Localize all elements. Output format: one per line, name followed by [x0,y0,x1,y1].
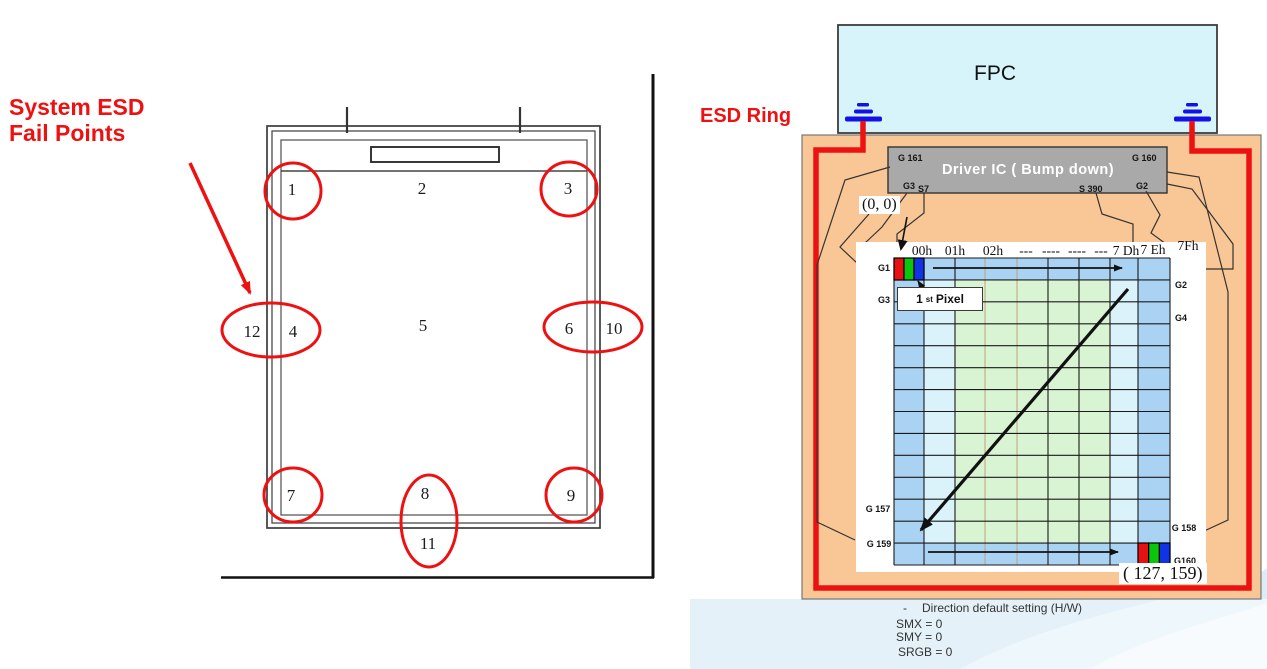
grid-cell [1017,258,1048,280]
grid-cell [1110,324,1138,346]
col-header-7eh: 7 Eh [1140,242,1165,258]
grid-cell [894,368,924,390]
fail-point-5: 5 [419,316,428,336]
grid-cell [985,543,1017,565]
grid-cell [894,543,924,565]
grid-cell [985,499,1017,521]
grid-cell [1048,390,1079,412]
grid-cell [924,368,955,390]
grid-cell [1138,280,1170,302]
grid-cell [1079,258,1110,280]
grid-cell [1017,346,1048,368]
col-header-7dh: 7 Dh [1113,243,1140,259]
grid-cell [894,346,924,368]
left-title-line2: Fail Points [9,120,145,146]
first-pixel-word: Pixel [936,292,964,306]
circle-point-12-4 [222,303,320,357]
grid-cell [1079,521,1110,543]
fail-points-arrow [190,163,250,293]
origin-coordinate-label: (0, 0) [859,196,900,214]
grid-cell [1110,543,1138,565]
note-srgb: SRGB = 0 [898,645,952,659]
row-label-g1: G1 [878,263,890,273]
grid-cell [1048,280,1079,302]
fail-point-8: 8 [421,484,430,504]
grid-cell [1110,412,1138,434]
grid-cell [955,543,985,565]
grid-cell [1048,521,1079,543]
grid-cell [1079,302,1110,324]
grid-cell [1138,455,1170,477]
fpc-block [838,25,1217,133]
fail-point-11: 11 [420,534,436,554]
row-label-g2: G2 [1175,280,1187,290]
col-header-d4: --- [1094,243,1108,259]
grid-cell [1079,433,1110,455]
fail-point-3: 3 [564,179,573,199]
note-smx: SMX = 0 [896,617,942,631]
fail-point-12: 12 [244,322,261,342]
grid-cell [924,412,955,434]
grid-cell [924,543,955,565]
diagram-canvas [0,0,1267,669]
pin-label-s7: S7 [918,184,929,194]
grid-cell [924,324,955,346]
grid-cell [894,499,924,521]
grid-cell [1138,521,1170,543]
grid-cell [1079,280,1110,302]
grid-cell [985,477,1017,499]
grid-cell [1138,433,1170,455]
grid-cell [894,521,924,543]
grid-cell [1017,499,1048,521]
grid-cell [1110,390,1138,412]
col-header-d2: ---- [1042,243,1060,259]
grid-cell [924,258,955,280]
grid-cell [894,412,924,434]
grid-cell [1079,543,1110,565]
grid-cell [955,499,985,521]
grid-cell [985,346,1017,368]
grid-cell [1110,521,1138,543]
grid-cell [1110,499,1138,521]
grid-cell [1048,258,1079,280]
fail-point-6: 6 [565,319,574,339]
grid-cell [1079,390,1110,412]
pin-label-g3: G3 [903,181,915,191]
grid-cell [924,433,955,455]
grid-cell [924,455,955,477]
fail-point-2: 2 [418,179,427,199]
row-label-g158: G 158 [1172,523,1197,533]
grid-cell [1017,280,1048,302]
grid-cell [1110,280,1138,302]
row-label-g157: G 157 [866,504,891,514]
grid-cell [1138,324,1170,346]
grid-cell [1048,543,1079,565]
grid-cell [1017,455,1048,477]
grid-cell [1110,258,1138,280]
left-title: System ESD Fail Points [9,94,145,146]
fail-point-10: 10 [606,319,623,339]
note-direction-setting: Direction default setting (H/W) [922,601,1082,615]
grid-cell [894,455,924,477]
first-pixel-ordinal: st [926,295,933,304]
grid-cell [985,521,1017,543]
grid-cell [1048,499,1079,521]
fail-point-4: 4 [289,322,298,342]
grid-cell [955,324,985,346]
grid-cell [1110,477,1138,499]
grid-cell [1110,346,1138,368]
col-header-d1: --- [1019,243,1033,259]
driver-ic-label: Driver IC ( Bump down) [942,162,1114,178]
fail-point-1: 1 [288,180,297,200]
note-smy: SMY = 0 [896,630,942,644]
grid-cell [1017,302,1048,324]
connector-bar [371,147,499,162]
grid-cell [985,280,1017,302]
grid-cell [894,477,924,499]
fail-point-7: 7 [287,486,296,506]
grid-cell [1079,368,1110,390]
row-label-g4: G4 [1175,313,1187,323]
grid-cell [1048,477,1079,499]
grid-cell [1138,258,1170,280]
grid-cell [955,477,985,499]
grid-cell [1017,521,1048,543]
left-title-line1: System ESD [9,94,145,120]
grid-cell [1138,477,1170,499]
grid-cell [1138,390,1170,412]
grid-cell [955,521,985,543]
circle-point-6-10 [544,302,642,352]
grid-cell [1017,433,1048,455]
last-pixel-rgb [1138,543,1170,565]
col-header-02h: 02h [983,243,1003,259]
grid-cell [1048,324,1079,346]
grid-cell [1110,368,1138,390]
grid-cell [1138,499,1170,521]
grid-cell [955,390,985,412]
fail-point-9: 9 [567,486,576,506]
grid-cell [955,258,985,280]
grid-cell [985,390,1017,412]
grid-cell [924,521,955,543]
slide: System ESD Fail Points 1 2 3 12 4 5 6 10… [0,0,1267,669]
grid-cell [1138,368,1170,390]
end-coordinate-label: ( 127, 159) [1119,563,1207,584]
grid-cell [894,390,924,412]
pin-label-s390: S 390 [1079,184,1103,194]
col-header-7fh: 7Fh [1177,238,1198,254]
grid-cell [1017,324,1048,346]
pin-label-g160: G 160 [1132,153,1157,163]
grid-cell [1079,455,1110,477]
grid-cell [924,346,955,368]
grid-cell [985,302,1017,324]
grid-cell [1079,477,1110,499]
col-header-d3: ---- [1068,243,1086,259]
row-label-g159: G 159 [867,539,892,549]
grid-cell [955,412,985,434]
grid-cell [1079,346,1110,368]
grid-cell [1048,412,1079,434]
note-dash: - [903,601,907,615]
grid-cell [1079,412,1110,434]
grid-cell [1048,302,1079,324]
grid-cell [955,368,985,390]
row-label-g3: G3 [878,295,890,305]
grid-cell [955,346,985,368]
grid-cell [1017,477,1048,499]
grid-cell [1079,499,1110,521]
first-pixel-number: 1 [916,292,923,306]
first-pixel-callout: 1st Pixel [897,287,983,311]
grid-cell [894,324,924,346]
grid-cell [924,390,955,412]
grid-cell [955,433,985,455]
fpc-label: FPC [974,62,1016,86]
grid-cell [985,258,1017,280]
fail-point-circles [222,162,642,567]
grid-cell [985,455,1017,477]
grid-cell [1110,433,1138,455]
grid-cell [894,433,924,455]
pin-label-g2: G2 [1136,181,1148,191]
grid-cell [985,324,1017,346]
grid-cell [1138,412,1170,434]
grid-cell [1138,346,1170,368]
grid-cell [1110,455,1138,477]
grid-cell [1138,302,1170,324]
col-header-01h: 01h [945,243,965,259]
grid-cell [1048,455,1079,477]
first-pixel-rgb [894,258,924,280]
col-header-00h: 00h [912,243,932,259]
grid-cell [985,368,1017,390]
esd-ring-label: ESD Ring [700,105,791,128]
grid-cell [1017,543,1048,565]
grid-cell [1048,433,1079,455]
pin-label-g161: G 161 [898,153,923,163]
